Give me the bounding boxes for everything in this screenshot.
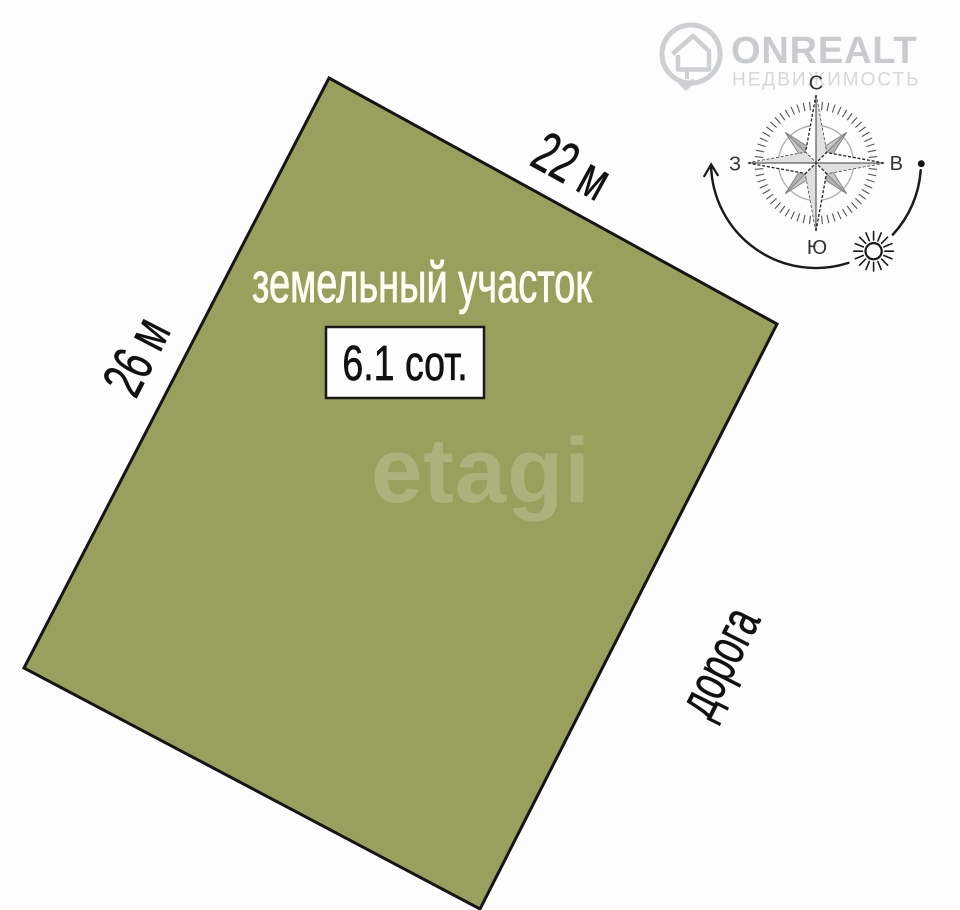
svg-text:Ю: Ю: [807, 237, 827, 259]
svg-text:земельный участок: земельный участок: [252, 251, 593, 315]
svg-text:6.1 сот.: 6.1 сот.: [342, 336, 467, 391]
svg-text:В: В: [890, 153, 903, 175]
svg-text:С: С: [809, 73, 823, 95]
svg-text:ONREALT: ONREALT: [731, 30, 917, 72]
svg-text:З: З: [729, 154, 741, 176]
svg-text:НЕДВИЖИМОСТЬ: НЕДВИЖИМОСТЬ: [732, 70, 921, 91]
svg-text:etagi: etagi: [371, 420, 591, 522]
